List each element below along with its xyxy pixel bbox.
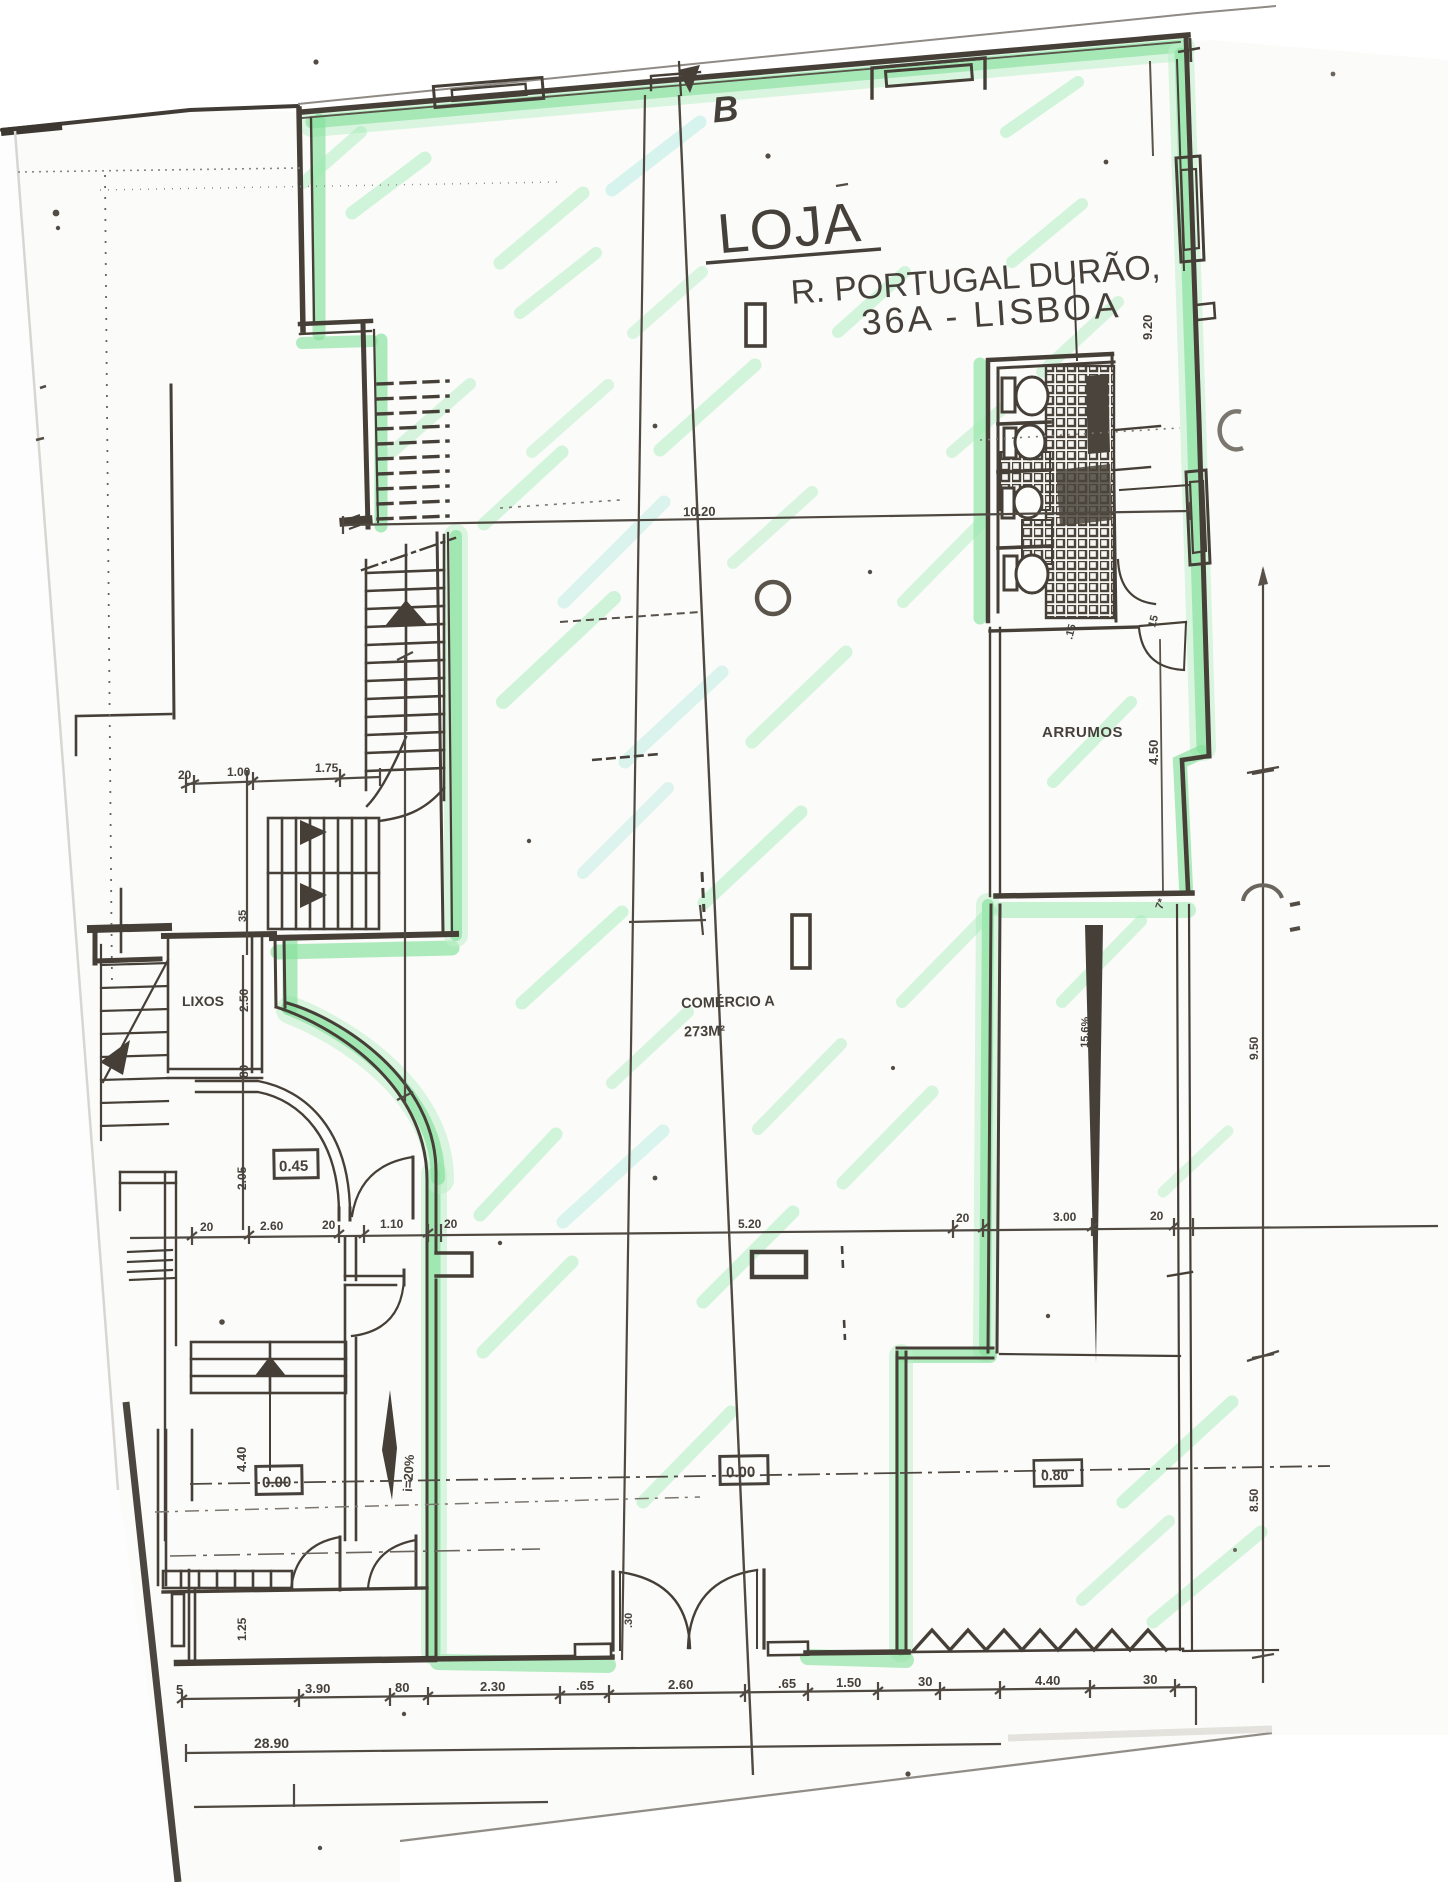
svg-text:9.20: 9.20 [1140,315,1155,340]
svg-text:273M²: 273M² [684,1023,726,1040]
svg-text:20: 20 [1150,1209,1164,1223]
svg-text:0.45: 0.45 [279,1158,308,1176]
svg-text:28.90: 28.90 [254,1735,289,1751]
svg-text:0.00: 0.00 [726,1464,755,1482]
svg-text:5.20: 5.20 [738,1217,762,1231]
svg-text:1.25: 1.25 [235,1617,249,1641]
svg-text:20: 20 [956,1211,970,1225]
svg-text:20: 20 [178,768,192,782]
svg-text:1.00: 1.00 [227,765,251,779]
svg-text:COMÉRCIO A: COMÉRCIO A [681,993,776,1012]
svg-text:LOJA: LOJA [715,190,864,265]
svg-text:B: B [710,87,740,130]
svg-text:20: 20 [322,1218,336,1232]
svg-text:2.50: 2.50 [237,988,251,1012]
svg-text:4.40: 4.40 [234,1447,249,1472]
svg-text:.65: .65 [576,1678,594,1693]
svg-text:30: 30 [1143,1672,1157,1687]
svg-text:80: 80 [237,1064,251,1078]
svg-text:10.20: 10.20 [683,504,716,520]
svg-text:1.10: 1.10 [380,1217,404,1231]
svg-text:80: 80 [395,1680,409,1695]
svg-text:2.05: 2.05 [235,1166,249,1190]
svg-text:2.30: 2.30 [480,1679,505,1694]
svg-text:4.50: 4.50 [1146,740,1161,765]
svg-text:15.6%: 15.6% [1079,1016,1092,1048]
svg-text:0.80: 0.80 [1041,1467,1069,1483]
svg-text:4.40: 4.40 [1035,1673,1060,1688]
svg-text:.65: .65 [778,1676,796,1691]
svg-text:30: 30 [918,1674,932,1689]
svg-text:LIXOS: LIXOS [182,993,224,1009]
svg-text:3.90: 3.90 [305,1681,330,1696]
svg-text:9.50: 9.50 [1247,1036,1261,1060]
svg-text:1.50: 1.50 [836,1675,861,1690]
svg-text:0.00: 0.00 [262,1474,291,1492]
svg-text:i=20%: i=20% [400,1454,417,1492]
svg-text:.30: .30 [623,1613,635,1628]
svg-text:1.75: 1.75 [315,761,339,775]
svg-text:3.00: 3.00 [1053,1210,1077,1224]
svg-text:ARRUMOS: ARRUMOS [1042,724,1123,741]
svg-text:20: 20 [444,1217,458,1231]
svg-text:20: 20 [200,1220,214,1234]
svg-text:8.50: 8.50 [1247,1488,1261,1512]
svg-text:2.60: 2.60 [668,1677,693,1692]
svg-text:2.60: 2.60 [260,1219,284,1233]
svg-text:5: 5 [176,1682,183,1697]
svg-text:35: 35 [237,910,249,922]
